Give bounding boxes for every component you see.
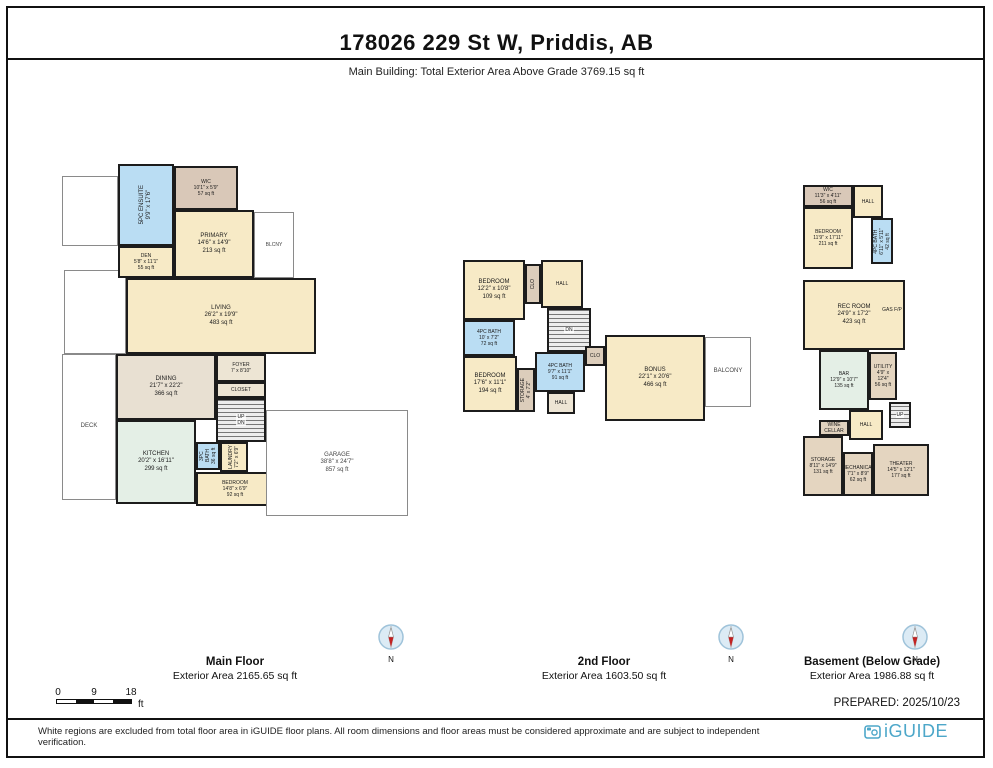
room-wine-cellar: WINE CELLAR <box>819 420 849 436</box>
footer-divider <box>8 718 985 720</box>
page-subtitle: Main Building: Total Exterior Area Above… <box>0 66 993 78</box>
room-laundry: LAUNDRY7'2" x 6'9" <box>220 442 248 472</box>
caption-basement: Basement (Below Grade) Exterior Area 198… <box>747 656 993 682</box>
compass-main-floor: N <box>377 624 405 664</box>
room-deck-upper-region <box>62 176 118 246</box>
prepared-date: PREPARED: 2025/10/23 <box>760 697 960 709</box>
room-closet-main: CLOSET <box>216 382 266 398</box>
compass-icon <box>718 624 744 650</box>
room-hall-basement-upper: HALL <box>853 185 883 218</box>
second-floor-plan: BEDROOM12'2" x 10'8"109 sq ftCLOHALLDN4P… <box>455 250 755 435</box>
iguide-camera-icon <box>864 724 881 739</box>
scale-tick: 18 <box>125 687 136 698</box>
room-wic-basement: WIC11'3" x 4'11"56 sq ft <box>803 185 853 207</box>
scale-unit: ft <box>138 699 144 710</box>
room-hall-2: HALL <box>541 260 583 308</box>
compass-icon <box>378 624 404 650</box>
room-bedroom-2b: BEDROOM17'6" x 11'1"194 sq ft <box>463 356 517 412</box>
scale-bar-strip <box>56 699 132 704</box>
main-floor-plan: DECK5PC ENSUITE9'9" x 17'6"WIC10'1" x 5'… <box>60 150 420 522</box>
room-kitchen: KITCHEN20'2" x 16'11"299 sq ft <box>116 420 196 504</box>
scale-ticks: 0 9 18 <box>56 687 132 699</box>
compass-icon <box>902 624 928 650</box>
room-storage-2: STORAGE4' x 7'2" <box>517 368 535 412</box>
scale-tick: 0 <box>55 687 61 698</box>
floor-area: Exterior Area 1986.88 sq ft <box>747 670 993 682</box>
room-gas-fireplace: GAS F/P <box>881 304 903 316</box>
room-hall-basement-lower: HALL <box>849 410 883 440</box>
room-den: DEN5'8" x 11'1"55 sq ft <box>118 246 174 278</box>
room-bath-4pc-2b: 4PC BATH9'7" x 11'1"91 sq ft <box>535 352 585 392</box>
room-bonus-room: BONUS22'1" x 20'6"466 sq ft <box>605 335 705 421</box>
page-title: 178026 229 St W, Priddis, AB <box>0 30 993 56</box>
caption-second-floor: 2nd Floor Exterior Area 1603.50 sq ft <box>479 656 729 682</box>
room-dining: DINING21'7" x 22'2"366 sq ft <box>116 354 216 420</box>
room-bedroom-2a: BEDROOM12'2" x 10'8"109 sq ft <box>463 260 525 320</box>
room-stairs-basement: UP <box>889 402 911 428</box>
room-bar: BAR12'9" x 10'7"135 sq ft <box>819 350 869 410</box>
room-foyer: FOYER7' x 8'10" <box>216 354 266 382</box>
scale-bar: 0 9 18 ft <box>56 687 132 704</box>
floor-area: Exterior Area 1603.50 sq ft <box>479 670 729 682</box>
room-garage: GARAGE38'8" x 24'7"857 sq ft <box>266 410 408 516</box>
room-deck-mid-region <box>64 270 126 354</box>
caption-main-floor: Main Floor Exterior Area 2165.65 sq ft <box>110 656 360 682</box>
room-balcony-2: BALCONY <box>705 337 751 407</box>
room-balcony-main: BLCNY <box>254 212 294 278</box>
room-closet-2b: CLO <box>585 346 605 366</box>
room-bath-3pc-main: 3PC BATH36 sq ft <box>196 442 220 470</box>
room-stairs-main: UPDN <box>216 398 266 442</box>
disclaimer-text: White regions are excluded from total fl… <box>38 726 798 748</box>
room-storage-basement: STORAGE8'11" x 14'9"131 sq ft <box>803 436 843 496</box>
compass-north-label: N <box>377 655 405 664</box>
room-bedroom-main: BEDROOM14'8" x 6'9"92 sq ft <box>196 472 274 506</box>
room-utility: UTILITY4'9" x 12'4"56 sq ft <box>869 352 897 400</box>
floor-name: Main Floor <box>110 656 360 668</box>
scale-tick: 9 <box>91 687 97 698</box>
room-ensuite-5pc: 5PC ENSUITE9'9" x 17'6" <box>118 164 174 246</box>
basement-plan: WIC11'3" x 4'11"56 sq ftBEDROOM11'9" x 1… <box>795 180 940 510</box>
room-living: LIVING26'2" x 19'9"483 sq ft <box>126 278 316 354</box>
room-wic-main: WIC10'1" x 5'9"57 sq ft <box>174 166 238 210</box>
room-mechanical: MECHANICAL7'1" x 8'9"62 sq ft <box>843 452 873 496</box>
iguide-logo: iGUIDE <box>864 721 948 742</box>
floor-name: 2nd Floor <box>479 656 729 668</box>
room-closet-2a: CLO <box>525 264 541 304</box>
room-primary-bedroom: PRIMARY14'6" x 14'9"213 sq ft <box>174 210 254 278</box>
floor-area: Exterior Area 2165.65 sq ft <box>110 670 360 682</box>
room-bedroom-basement: BEDROOM11'9" x 17'11"211 sq ft <box>803 207 853 269</box>
iguide-logo-text: iGUIDE <box>884 721 948 742</box>
room-hall-2b: HALL <box>547 392 575 414</box>
floorplan-page: 178026 229 St W, Priddis, AB Main Buildi… <box>0 0 993 768</box>
room-theater: THEATER14'5" x 12'1"177 sq ft <box>873 444 929 496</box>
room-bath-4pc-2a: 4PC BATH10' x 7'2"72 sq ft <box>463 320 515 356</box>
floor-name: Basement (Below Grade) <box>747 656 993 668</box>
title-divider <box>8 58 985 60</box>
room-deck: DECK <box>62 354 116 500</box>
room-bath-4pc-basement: 4PC BATH6'11" x 5'11"42 sq ft <box>871 218 893 264</box>
